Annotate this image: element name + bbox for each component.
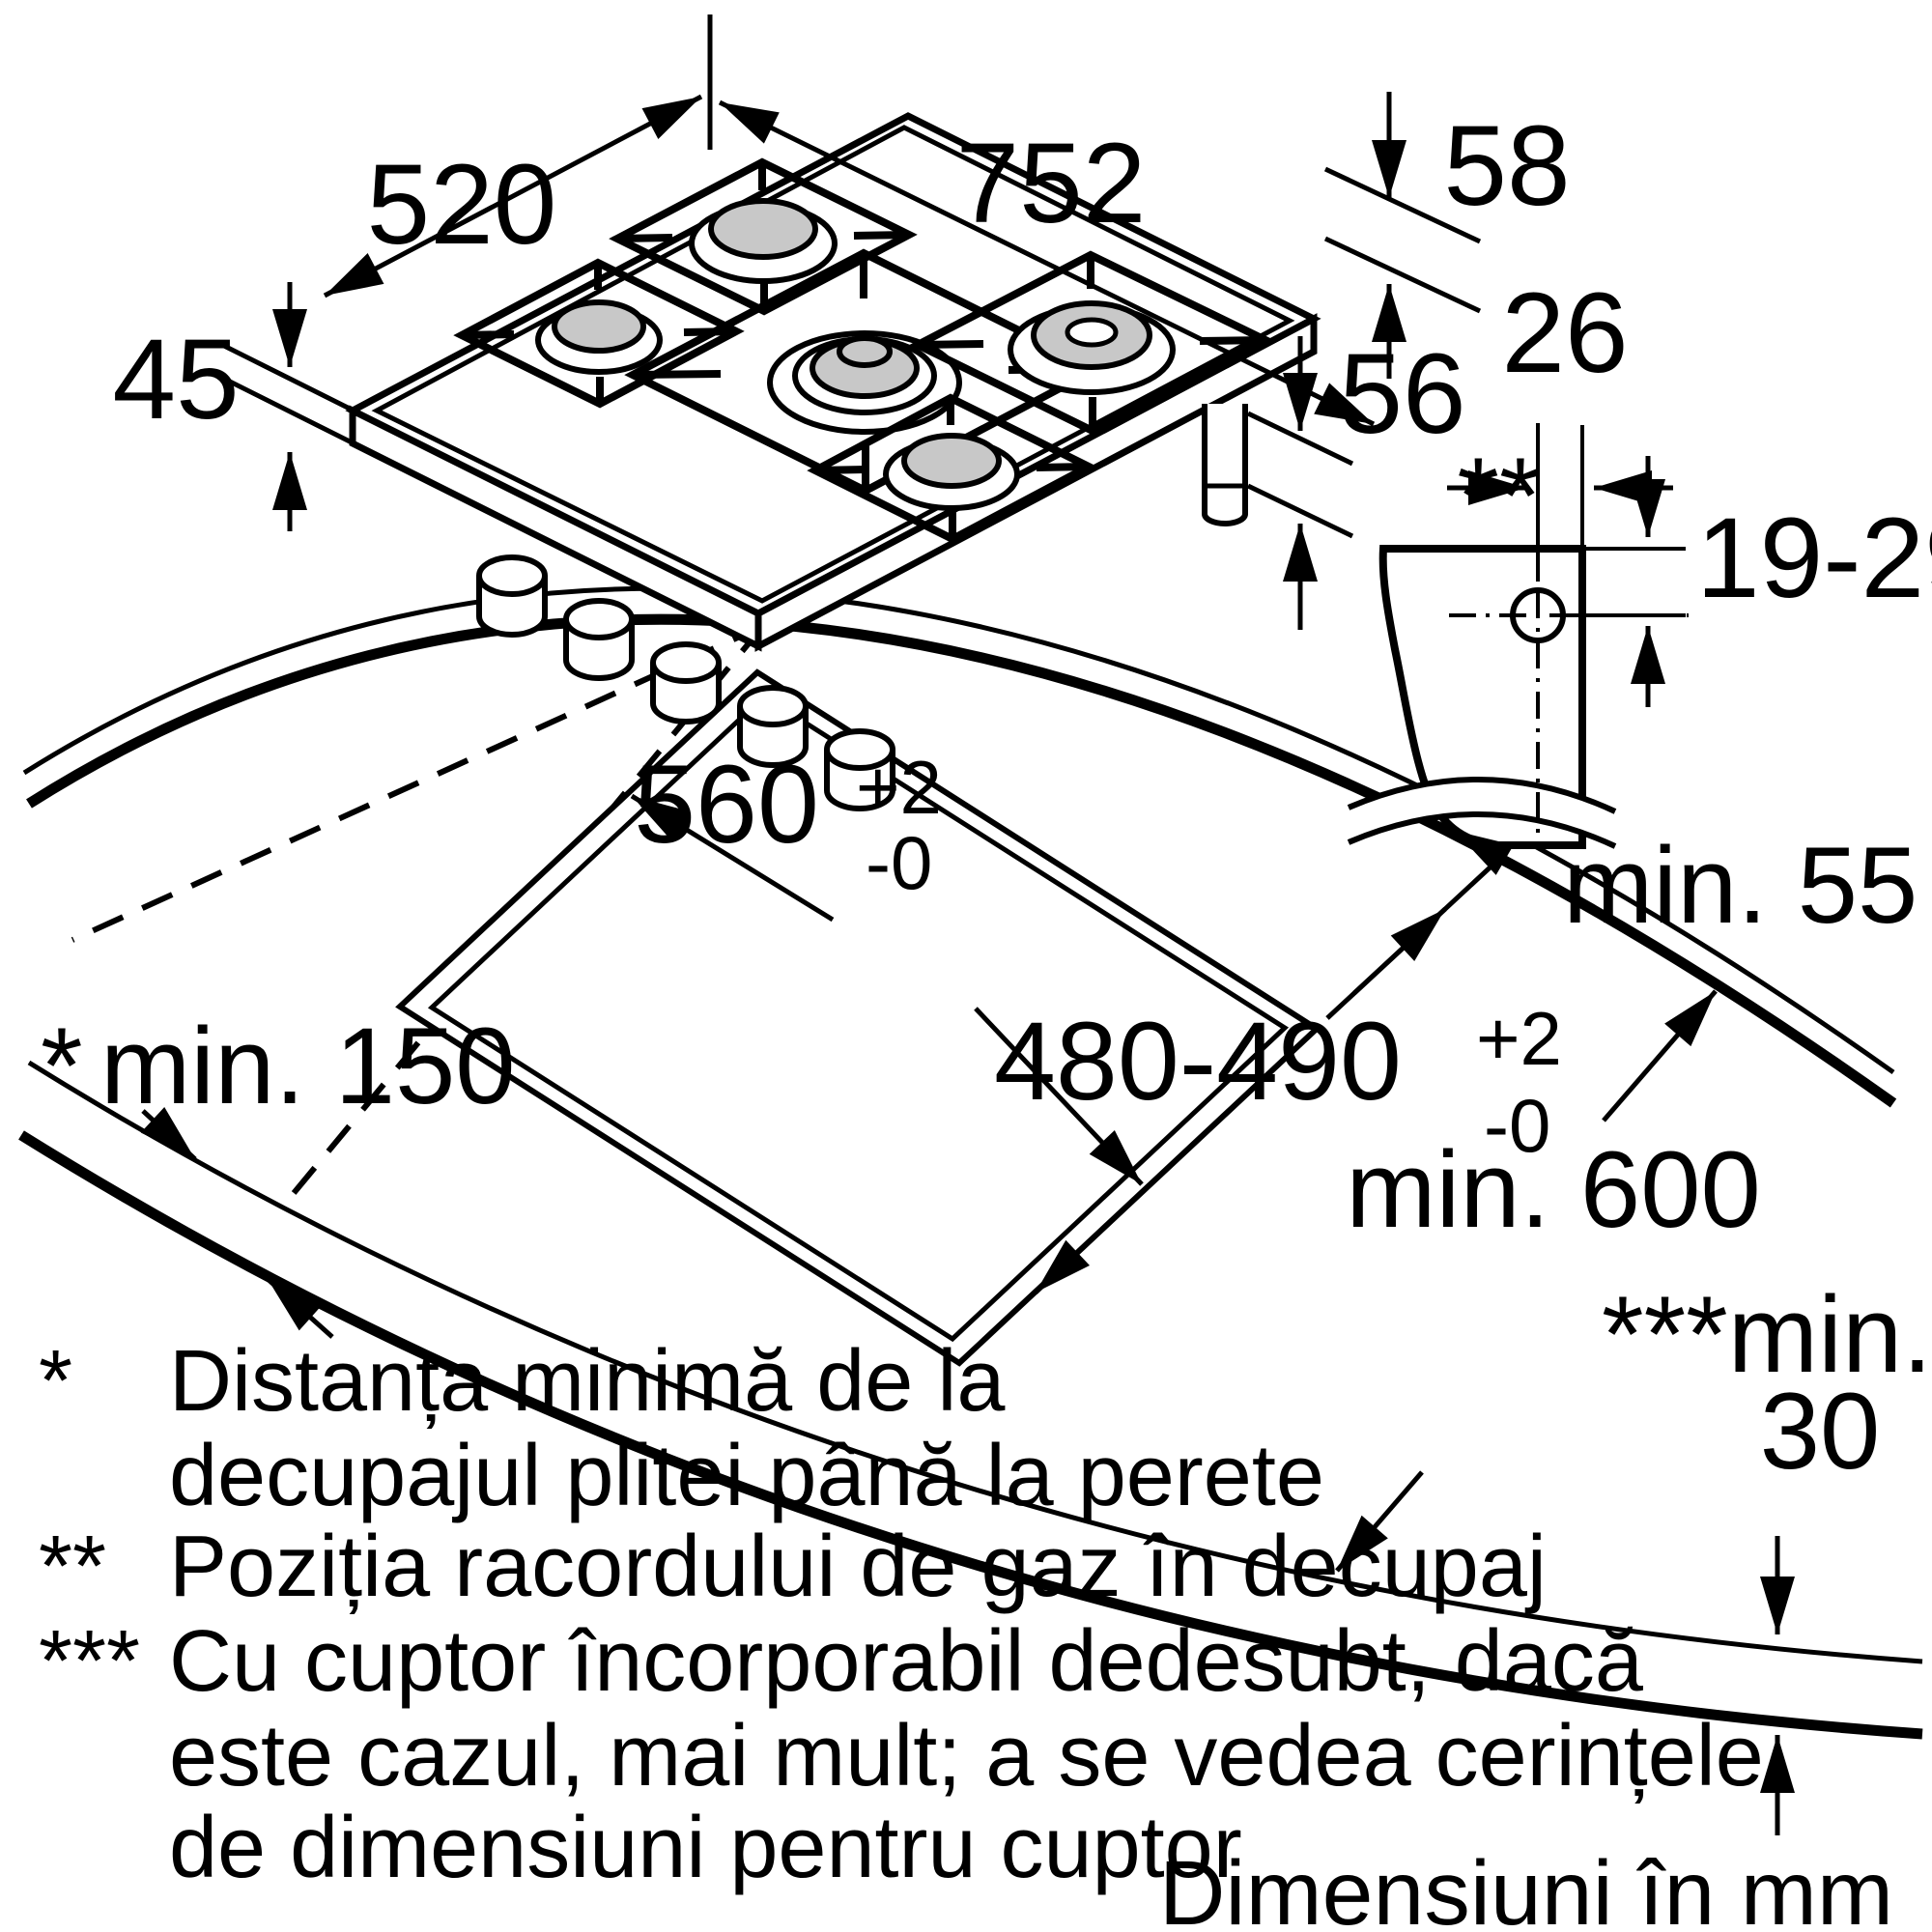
gas-position-marker: ** (1457, 436, 1541, 556)
footnote1-marker: * (39, 1333, 72, 1430)
dim-480-arrow-up (1354, 909, 1445, 993)
burner-cap-ring (1067, 320, 1116, 345)
footnote3-line3: de dimensiuni pentru cuptor (169, 1800, 1242, 1896)
burner-cap (711, 201, 815, 257)
dim-min150-marker: * (41, 1006, 83, 1126)
burner-cap-top (839, 338, 890, 365)
dim-1929-label: 19-29 (1696, 495, 1932, 622)
footnote1-line2: decupajul plitei până la perete (169, 1428, 1324, 1524)
footnote2-marker: ** (39, 1519, 106, 1615)
dim-560-tol-plus: +2 (856, 745, 942, 830)
footnote1-line1: Distanța minimă de la (169, 1333, 1006, 1430)
footnote3-line2: este cazul, mai mult; a se vedea cerințe… (169, 1708, 1764, 1804)
footnotes: * Distanța minimă de la decupajul plitei… (39, 1333, 1893, 1932)
footnote3-marker: *** (39, 1613, 140, 1710)
dim-min150-label: min. 150 (100, 1006, 516, 1126)
units-note: Dimensiuni în mm (1159, 1842, 1893, 1932)
knob-top (566, 601, 632, 638)
gas-pipe-body (1205, 404, 1245, 524)
dim-480-label: 480-490 (994, 1000, 1402, 1123)
dim-45-label: 45 (112, 316, 239, 443)
dim-58-label: 58 (1443, 102, 1570, 230)
knob-top (653, 644, 719, 681)
dim-26-label: 26 (1501, 270, 1628, 397)
dim-45-tick-bottom (224, 379, 355, 444)
dim-520-label: 520 (367, 141, 557, 269)
burner-cap (904, 436, 999, 486)
dim-560-label: 560 (634, 743, 819, 867)
dim-56-label: 56 (1339, 330, 1465, 458)
dim-480-tol-plus: +2 (1476, 996, 1562, 1081)
dim-min55-label: min. 55 (1563, 825, 1918, 946)
burner-cap (554, 302, 643, 351)
knob-top (740, 688, 806, 724)
diagram-page: 752 520 45 58 56 26 ** 19-29 (0, 0, 1932, 1932)
dim-min600-arrow-up (1604, 991, 1716, 1121)
hob-installation-diagram: 752 520 45 58 56 26 ** 19-29 (0, 0, 1932, 1932)
dim-min30-value: 30 (1760, 1371, 1881, 1492)
footnote3-line1: Cu cuptor încorporabil dedesubt, dacă (169, 1613, 1644, 1710)
footnote2-line1: Poziția racordului de gaz în decupaj (169, 1519, 1547, 1615)
dim-min600-label: min. 600 (1346, 1129, 1761, 1250)
gas-pipe (1205, 404, 1245, 524)
dim-560-tol-minus: -0 (866, 820, 932, 905)
dim-min30-marker: *** (1602, 1274, 1728, 1395)
dim-58-tick-bottom (1325, 239, 1480, 311)
dim-752-label: 752 (956, 120, 1147, 247)
gas-connector-detail (1349, 541, 1689, 846)
knob-top (479, 557, 545, 594)
